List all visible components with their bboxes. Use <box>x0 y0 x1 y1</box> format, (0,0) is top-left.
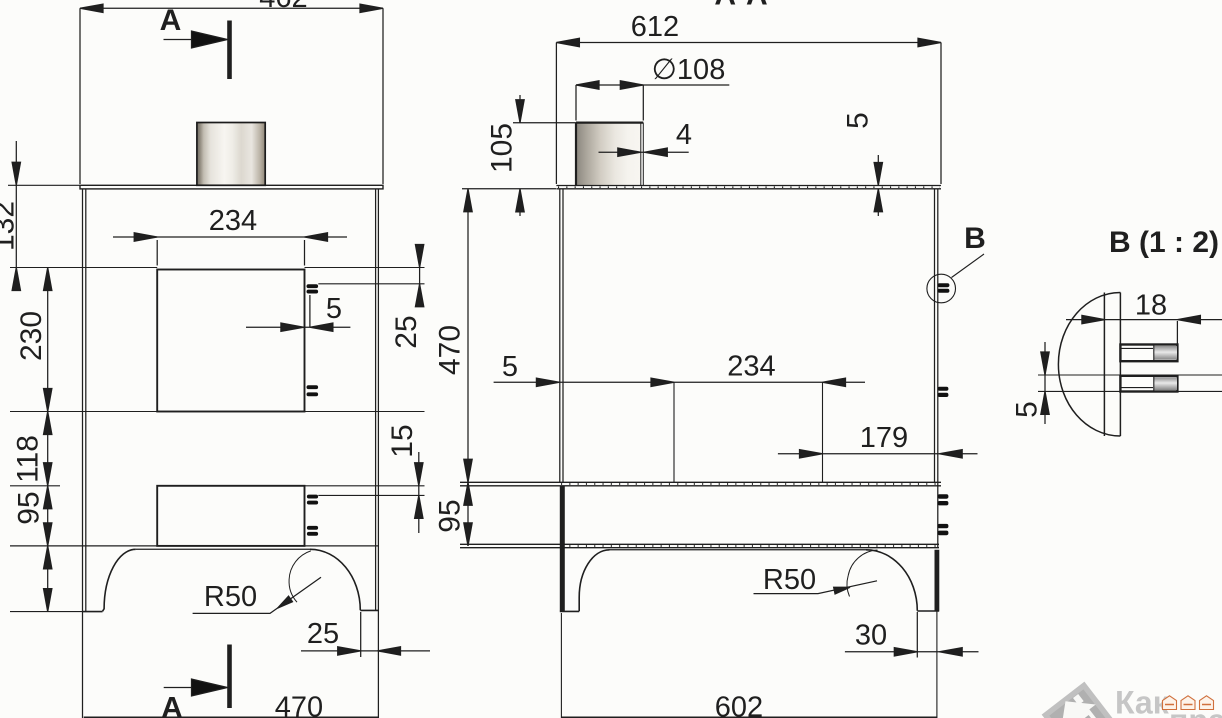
svg-text:470: 470 <box>275 692 323 718</box>
svg-text:602: 602 <box>715 692 763 718</box>
svg-text:25: 25 <box>390 315 423 348</box>
svg-text:95: 95 <box>13 491 46 524</box>
svg-text:4: 4 <box>676 119 692 151</box>
svg-text:179: 179 <box>860 422 908 454</box>
svg-text:5: 5 <box>842 112 875 129</box>
svg-text:5: 5 <box>502 351 518 383</box>
svg-text:15: 15 <box>386 424 419 457</box>
svg-text:118: 118 <box>12 435 45 483</box>
svg-text:25: 25 <box>307 618 339 650</box>
svg-text:132: 132 <box>0 201 21 251</box>
svg-text:A: A <box>160 4 182 37</box>
svg-text:230: 230 <box>15 311 48 361</box>
svg-text:A: A <box>161 692 183 718</box>
svg-text:Как: Как <box>1115 685 1170 718</box>
svg-text:∅108: ∅108 <box>652 54 726 86</box>
svg-text:234: 234 <box>209 205 257 237</box>
svg-text:5: 5 <box>326 293 342 325</box>
svg-text:18: 18 <box>1135 290 1167 322</box>
svg-text:B (1 : 2): B (1 : 2) <box>1109 226 1219 259</box>
svg-text:R50: R50 <box>763 564 816 596</box>
svg-text:A-A: A-A <box>714 0 767 12</box>
svg-text:462: 462 <box>259 0 307 14</box>
svg-text:30: 30 <box>855 620 887 652</box>
svg-text:612: 612 <box>631 11 679 43</box>
svg-text:B: B <box>964 222 986 255</box>
svg-text:234: 234 <box>727 351 775 383</box>
svg-text:470: 470 <box>434 325 467 375</box>
svg-text:5: 5 <box>1011 401 1044 418</box>
svg-text:105: 105 <box>486 123 519 173</box>
svg-text:95: 95 <box>434 499 467 532</box>
svg-text:R50: R50 <box>204 581 257 613</box>
